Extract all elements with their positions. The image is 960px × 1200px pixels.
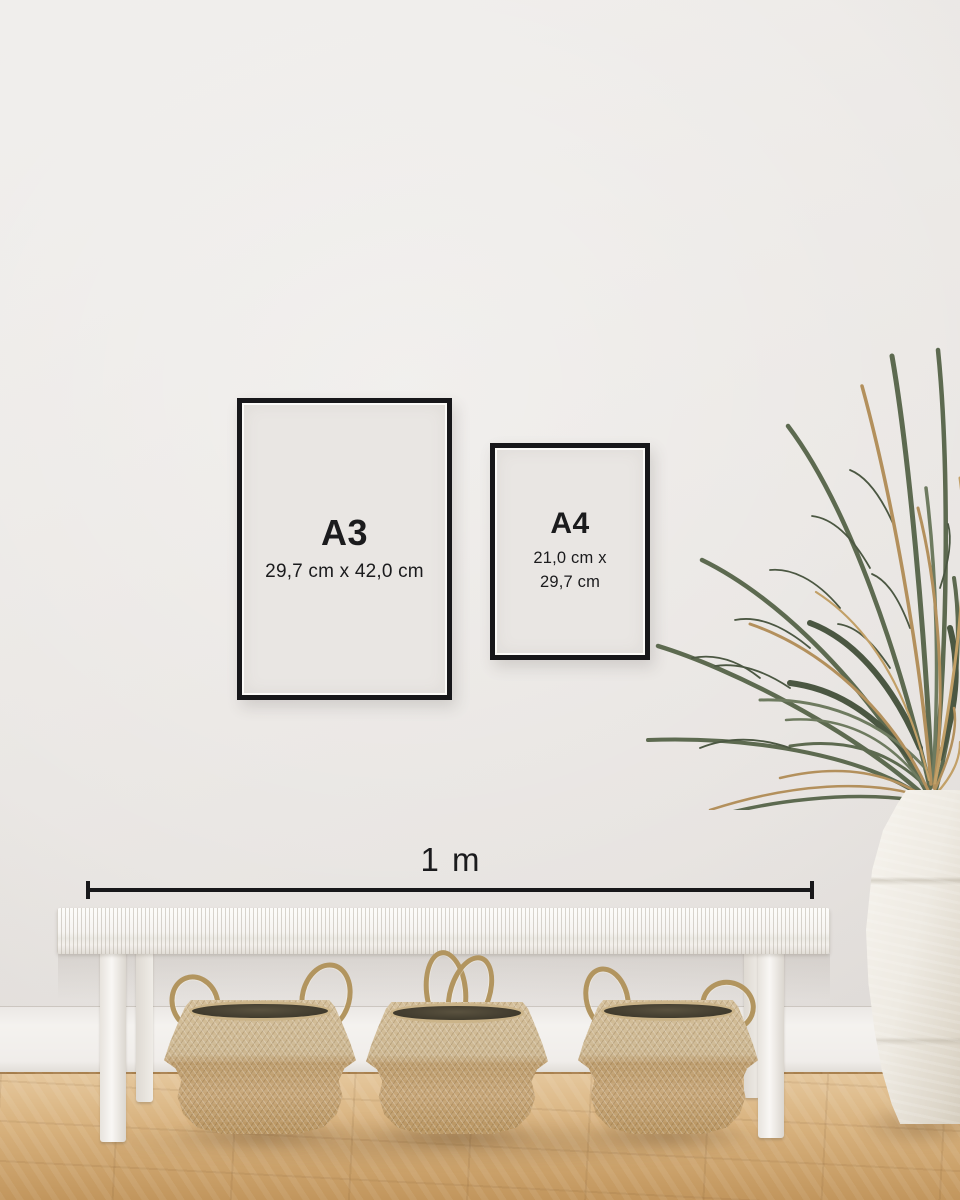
frame-a3-size-label: A3 — [321, 515, 368, 551]
frame-a4-dimensions: 21,0 cm x 29,7 cm — [533, 547, 606, 595]
basket-body — [366, 1002, 548, 1134]
seagrass-basket-middle — [366, 948, 548, 1134]
bench-leg-front-left — [100, 952, 126, 1142]
frame-a3: A3 29,7 cm x 42,0 cm — [237, 398, 452, 700]
scale-bar-line — [88, 888, 814, 892]
basket-opening — [390, 1003, 525, 1023]
basket-opening — [601, 1001, 734, 1021]
frame-size-guide-scene: A3 29,7 cm x 42,0 cm A4 21,0 cm x 29,7 c… — [0, 0, 960, 1200]
basket-body — [578, 1000, 758, 1134]
bench-leg-front-right — [758, 952, 784, 1138]
bench-leg-back-left — [136, 950, 153, 1102]
scale-bar-label: 1 m — [88, 841, 814, 879]
seagrass-basket-right — [578, 964, 758, 1134]
basket-opening — [189, 1001, 331, 1021]
frame-a3-dimensions: 29,7 cm x 42,0 cm — [265, 561, 424, 583]
scale-bar-tick-right — [810, 881, 814, 899]
frame-a4-size-label: A4 — [550, 509, 589, 539]
scale-bar-tick-left — [86, 881, 90, 899]
palm-plant — [640, 328, 960, 810]
frame-a4: A4 21,0 cm x 29,7 cm — [490, 443, 650, 660]
frame-a4-dimensions-line2: 29,7 cm — [533, 571, 606, 595]
frame-a4-dimensions-line1: 21,0 cm x — [533, 547, 606, 571]
seagrass-basket-left — [164, 960, 356, 1134]
basket-body — [164, 1000, 356, 1134]
